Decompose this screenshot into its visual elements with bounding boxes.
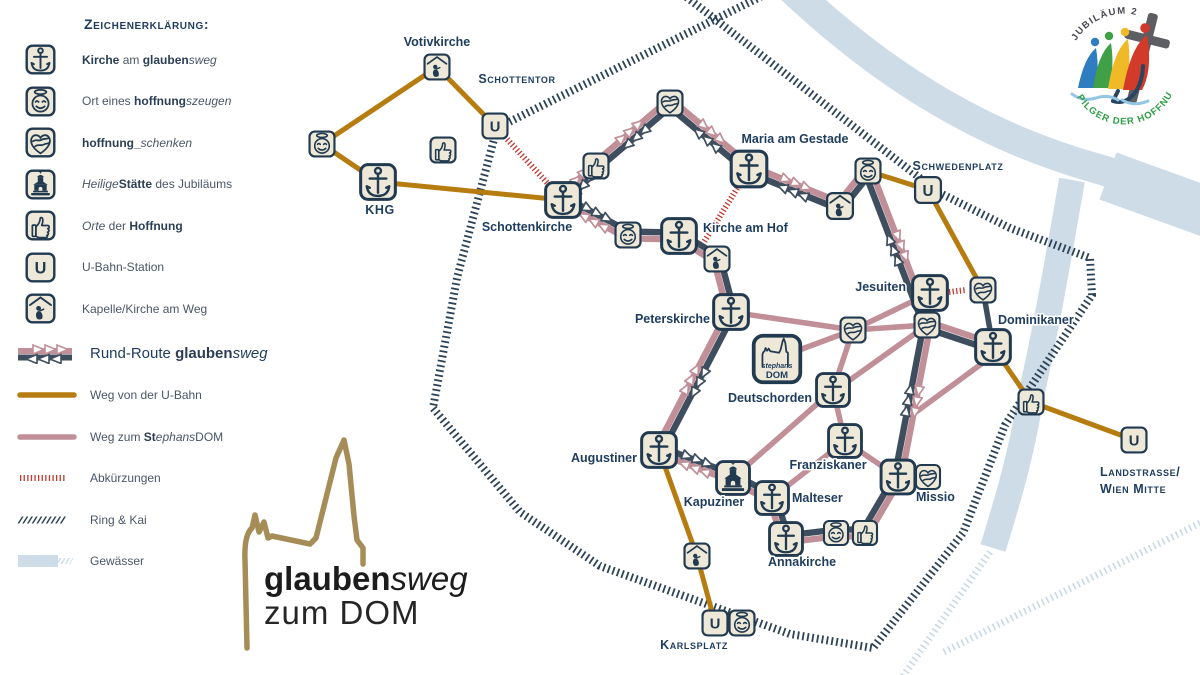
legend-item-church: Kirche am glaubensweg: [16, 44, 306, 75]
legend-item-label: Kirche am glaubensweg: [82, 53, 217, 67]
map-label: Schottentor: [478, 72, 555, 86]
hope-witness-icon: [730, 611, 755, 636]
legend-text-segment: Kirche: [82, 53, 119, 67]
legend-text-segment: szeugen: [186, 94, 231, 108]
legend-text-segment: Ring & Kai: [90, 513, 147, 527]
legend-item-label: Ort eines hoffnungszeugen: [82, 94, 231, 108]
legend-text-segment: des Jubiläums: [152, 177, 232, 191]
map-label: Landstrasse/: [1100, 465, 1180, 479]
holy-site-icon: [717, 462, 750, 495]
logo-word-glauben: glauben: [264, 560, 391, 597]
legend-text-segment: schenken: [141, 136, 192, 150]
heart-icon: [971, 278, 996, 303]
route-arrow-navy: [778, 185, 789, 194]
map-label: Karlsplatz: [660, 638, 728, 652]
church-icon: [829, 425, 862, 458]
route-arrow-navy: [681, 450, 692, 459]
legend-item-ubahn: U-Bahn-Station: [16, 252, 306, 283]
legend-text-segment: der: [105, 219, 129, 233]
wasser-line-sample: [16, 551, 80, 571]
hope-witness-icon: [616, 223, 641, 248]
legend-text-segment: Gewässer: [90, 554, 144, 568]
hope-witness-icon: [25, 86, 56, 117]
abk-line-sample: [16, 468, 80, 488]
map-label: Franziskaner: [789, 458, 866, 472]
legend-route-label: Gewässer: [90, 554, 144, 568]
legend-item-face: Ort eines hoffnungszeugen: [16, 86, 306, 117]
legend-route-label: Rund-Route glaubensweg: [90, 345, 268, 362]
ubahn-way: [1031, 402, 1134, 440]
legend-route-ubahnweg: Weg von der U-Bahn: [16, 380, 306, 411]
thumbs-up-icon: [25, 210, 56, 241]
dom-spire-drawing: [238, 432, 388, 667]
legend-route-label: Weg von der U-Bahn: [90, 388, 202, 402]
legend-text-segment: Heilige: [82, 177, 119, 191]
ubahn-icon: [703, 611, 728, 636]
legend-route-label: Ring & Kai: [90, 513, 147, 527]
heart-icon: [841, 318, 866, 343]
water-band: [1108, 176, 1200, 218]
jubilaeum-2025-badge: JUBILÄUM 2025 PILGER DER HOFFNUNG: [1058, 6, 1198, 141]
legend-text-segment: Ort eines: [82, 94, 134, 108]
church-icon: [770, 523, 803, 556]
legend-text-segment: sweg: [189, 53, 217, 67]
ubahn-icon: [25, 252, 56, 283]
legend-item-heart: hoffnung_schenken: [16, 127, 306, 158]
rundroute-line-sample: [16, 344, 80, 364]
legend-text-segment: hoffnung: [82, 136, 134, 150]
legend-item-label: hoffnung_schenken: [82, 136, 192, 150]
hope-witness-icon: [856, 159, 881, 184]
route-arrow-navy: [702, 367, 711, 378]
legend-items: Kirche am glaubenswegOrt eines hoffnungs…: [16, 44, 306, 324]
legend-text-segment: Abkürzungen: [90, 471, 161, 485]
route-arrow-pink: [690, 365, 699, 376]
logo-line1: glaubensweg: [264, 562, 468, 596]
map-label: DOM: [766, 370, 788, 381]
holy-site-icon: [25, 169, 56, 200]
church-icon: [881, 460, 915, 494]
church-icon: [913, 276, 948, 311]
legend-text-segment: Weg zum: [90, 430, 144, 444]
domweg-line-sample: [16, 427, 80, 447]
chapel-icon: [25, 293, 56, 324]
map-label: Annakirche: [768, 555, 836, 569]
route-arrow-pink: [680, 384, 689, 395]
route-arrow-navy: [691, 454, 702, 463]
thumbs-up-icon: [431, 138, 456, 163]
legend-route-label: Weg zum StephansDOM: [90, 430, 223, 444]
legend-item-thumb: Orte der Hoffnung: [16, 210, 306, 241]
route-arrow-pink: [679, 462, 690, 471]
logo-word-sweg: sweg: [391, 560, 468, 597]
dom-way: [916, 362, 984, 412]
map-label: Kapuziner: [684, 495, 745, 509]
legend-text-segment: St: [144, 430, 156, 444]
map-label: Augustiner: [571, 451, 637, 465]
thumbs-up-icon: [853, 521, 877, 545]
church-icon: [361, 165, 396, 200]
shortcut-line: [701, 182, 741, 247]
map-label: Jesuiten: [855, 280, 906, 294]
legend-text-segment: _: [134, 136, 141, 150]
legend-item-chapel: Kapelle/Kirche am Weg: [16, 293, 306, 324]
route-arrow-pink: [685, 374, 694, 385]
legend-text-segment: DOM: [195, 430, 223, 444]
church-icon: [546, 183, 581, 218]
map-label: stephans: [762, 363, 793, 370]
chapel-icon: [685, 544, 710, 569]
route-arrow-pink: [780, 173, 791, 182]
route-arrow-pink: [690, 466, 701, 475]
legend-text-segment: glauben: [143, 53, 189, 67]
thumbs-up-icon: [1019, 390, 1044, 415]
ubahn-icon: [915, 177, 941, 203]
legend-item-label: HeiligeStätte des Jubiläums: [82, 177, 232, 191]
route-arrow-pink: [800, 181, 811, 190]
logo-text: glaubensweg zum DOM: [264, 562, 468, 630]
map-label: Missio: [916, 490, 955, 504]
heart-icon: [25, 127, 56, 158]
chapel-icon: [705, 247, 730, 272]
logo-line2: zum DOM: [264, 596, 468, 630]
hope-witness-icon: [824, 521, 848, 545]
church-icon: [817, 374, 850, 407]
legend-text-segment: glauben: [175, 345, 233, 362]
legend-text-segment: Stätte: [119, 177, 152, 191]
heart-icon: [658, 91, 683, 116]
map-label: Dominikaner: [998, 313, 1074, 327]
heart-icon: [916, 465, 940, 489]
route-arrow-navy: [702, 458, 713, 467]
legend-text-segment: am: [119, 53, 142, 67]
legend-text-segment: Hoffnung: [129, 219, 182, 233]
shortcut-line: [949, 290, 966, 292]
route-arrow-pink: [700, 469, 711, 478]
church-icon: [662, 219, 697, 254]
legend-text-segment: sweg: [233, 345, 268, 362]
map-label: KHG: [365, 203, 395, 217]
legend-text-segment: hoffnung: [134, 94, 186, 108]
church-icon: [731, 151, 767, 187]
legend-item-label: Orte der Hoffnung: [82, 219, 183, 233]
chapel-icon: [425, 55, 450, 80]
route-arrow-pink: [790, 177, 801, 186]
legend-text-segment: Kapelle/Kirche am Weg: [82, 302, 207, 316]
chapel-icon: [827, 193, 853, 219]
legend-item-label: U-Bahn-Station: [82, 260, 164, 274]
legend-text-segment: Rund-Route: [90, 345, 175, 362]
map-label: Malteser: [792, 491, 843, 505]
ubahnweg-line-sample: [16, 385, 80, 405]
church-icon: [25, 44, 56, 75]
glaubensweg-logo: glaubensweg zum DOM: [238, 430, 518, 670]
water-hatch-line: [903, 552, 990, 675]
map-label: Deutschorden: [728, 391, 812, 405]
ring-line-sample: [16, 510, 80, 530]
ring-kai-line: [433, 0, 1092, 648]
legend-text-segment: U-Bahn-Station: [82, 260, 164, 274]
legend-text-segment: ephans: [156, 430, 195, 444]
church-icon: [976, 330, 1011, 365]
ubahn-icon: [1122, 428, 1147, 453]
map-label: Wien Mitte: [1100, 482, 1166, 496]
hope-witness-icon: [310, 132, 335, 157]
legend-route-label: Abkürzungen: [90, 471, 161, 485]
map-label: Maria am Gestade: [742, 132, 849, 146]
legend-text-segment: Orte: [82, 219, 105, 233]
map-label: Kirche am Hof: [703, 221, 789, 235]
legend-item-label: Kapelle/Kirche am Weg: [82, 302, 207, 316]
thumbs-up-icon: [584, 154, 609, 179]
legend-item-temple: HeiligeStätte des Jubiläums: [16, 169, 306, 200]
ubahn-icon: [483, 114, 508, 139]
church-icon: [756, 482, 789, 515]
ubahn-way: [378, 182, 563, 200]
route-arrow-navy: [788, 189, 799, 198]
church-icon: [642, 433, 677, 468]
map-label: Peterskirche: [635, 312, 710, 326]
heart-icon: [915, 313, 940, 338]
map-label: Schwedenplatz: [913, 159, 1004, 173]
route-arrow-navy: [798, 193, 809, 202]
church-icon: [714, 295, 749, 330]
map-label: Schottenkirche: [482, 220, 572, 234]
legend-text-segment: Weg von der U-Bahn: [90, 388, 202, 402]
map-label: Votivkirche: [404, 35, 471, 49]
ubahn-way: [322, 67, 437, 144]
legend-route-rundroute: Rund-Route glaubensweg: [16, 338, 306, 369]
map-poster: U VotivkircheSchottentorKHGSchottenkirch…: [0, 0, 1200, 675]
legend-title: Zeichenerklärung:: [84, 16, 306, 32]
